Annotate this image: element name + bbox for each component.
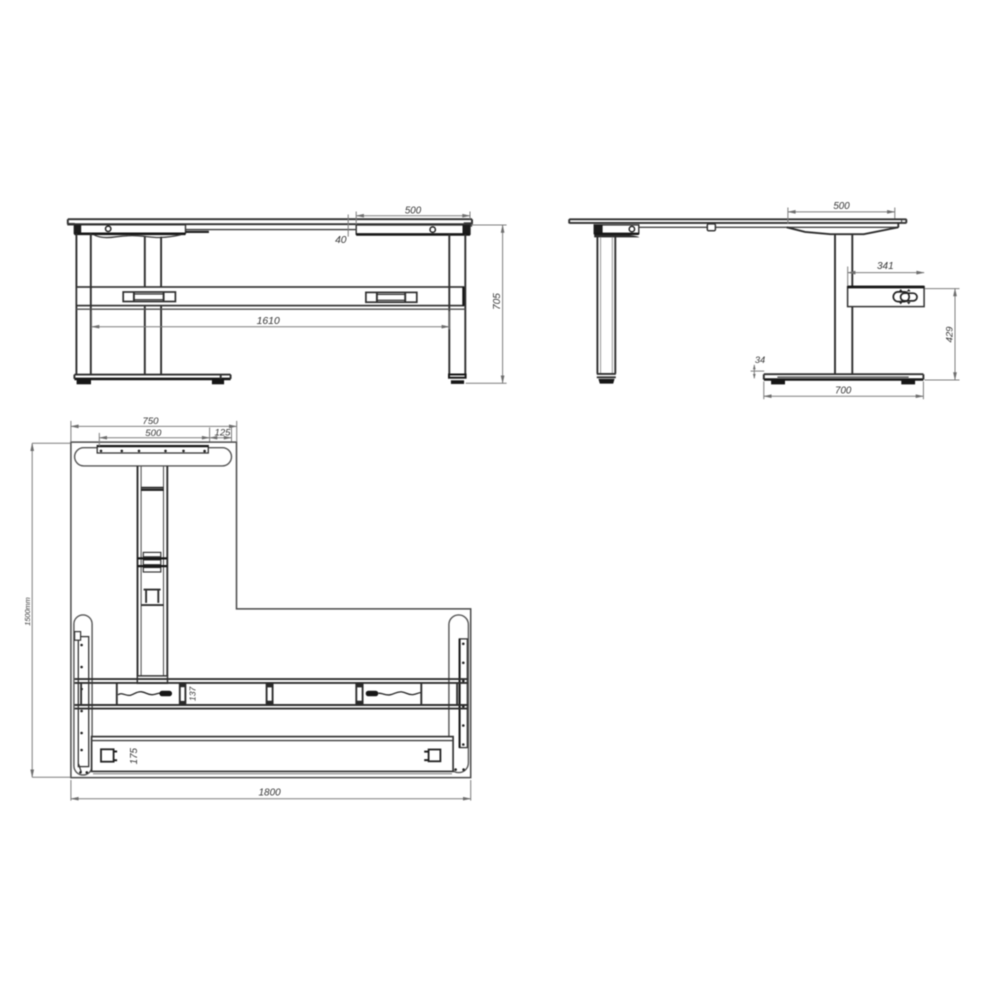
svg-text:750: 750 [142,416,159,427]
svg-text:500: 500 [145,428,162,439]
svg-text:500: 500 [833,201,850,212]
svg-text:705: 705 [492,293,503,310]
svg-text:34: 34 [755,355,765,365]
svg-text:137: 137 [188,686,198,702]
svg-text:40: 40 [335,235,347,246]
svg-text:429: 429 [944,326,955,343]
svg-text:1800: 1800 [258,787,281,798]
svg-text:700: 700 [835,385,852,396]
svg-text:500: 500 [405,206,422,217]
svg-text:1500mm: 1500mm [23,597,32,625]
svg-text:175: 175 [129,747,140,764]
svg-text:125: 125 [214,428,231,439]
svg-text:1610: 1610 [257,316,280,327]
svg-text:341: 341 [877,261,894,272]
